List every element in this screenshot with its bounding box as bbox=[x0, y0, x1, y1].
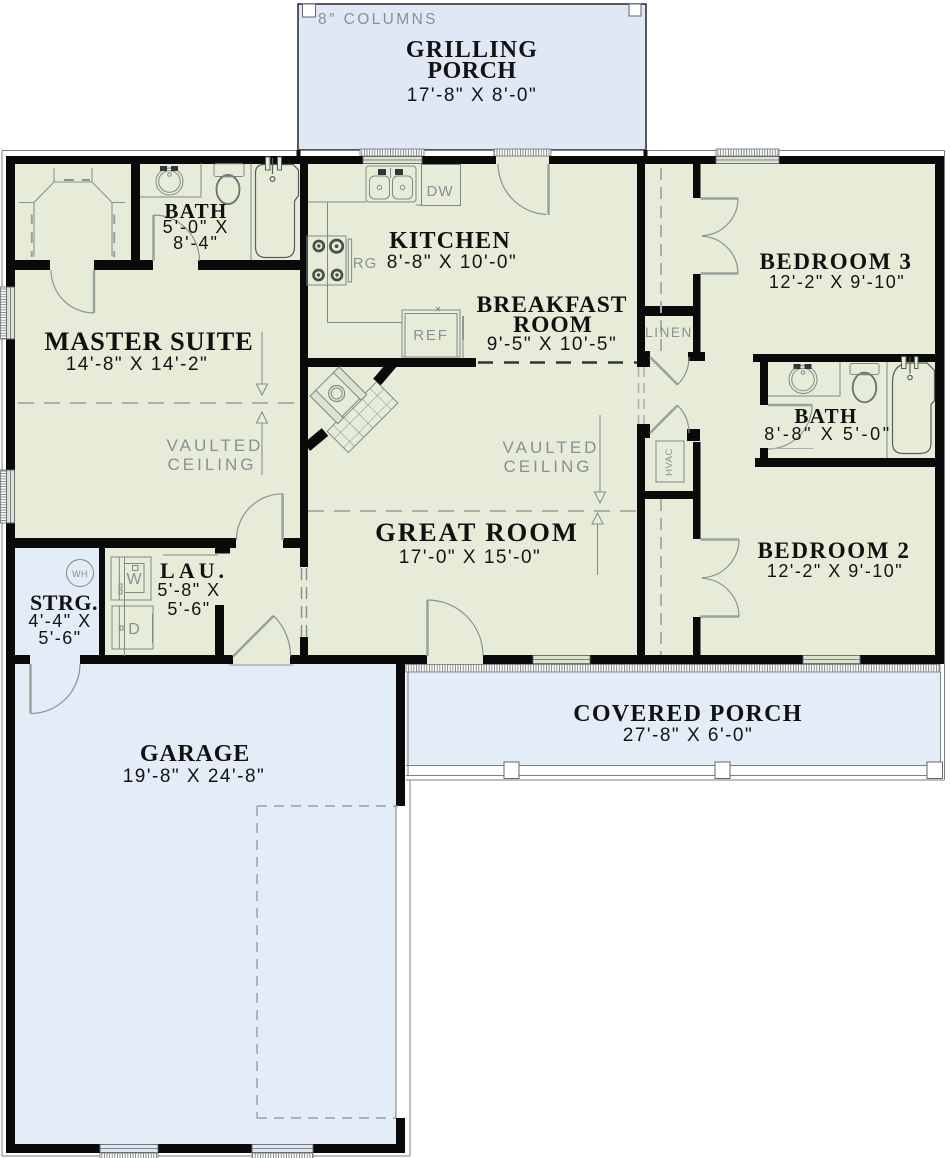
svg-text:CEILING: CEILING bbox=[503, 457, 592, 476]
svg-text:PORCH: PORCH bbox=[427, 58, 516, 84]
svg-text:12'-2" X 9'-10": 12'-2" X 9'-10" bbox=[767, 561, 903, 581]
svg-text:D: D bbox=[128, 621, 140, 638]
svg-text:5'-6": 5'-6" bbox=[38, 628, 81, 648]
svg-text:VAULTED: VAULTED bbox=[503, 438, 600, 457]
svg-text:W: W bbox=[126, 571, 142, 588]
svg-text:8'-8" X 5'-0": 8'-8" X 5'-0" bbox=[764, 424, 892, 444]
svg-text:9'-5" X 10'-5": 9'-5" X 10'-5" bbox=[487, 334, 617, 355]
svg-text:BEDROOM 2: BEDROOM 2 bbox=[757, 538, 910, 563]
svg-text:VAULTED: VAULTED bbox=[167, 436, 264, 455]
svg-text:COVERED PORCH: COVERED PORCH bbox=[573, 701, 803, 727]
svg-text:GARAGE: GARAGE bbox=[140, 741, 250, 767]
svg-text:RG: RG bbox=[353, 255, 378, 272]
svg-text:5'-6": 5'-6" bbox=[167, 599, 210, 619]
svg-text:19'-8" X 24'-8": 19'-8" X 24'-8" bbox=[123, 766, 266, 787]
svg-text:8'-4": 8'-4" bbox=[173, 233, 219, 253]
svg-text:LINEN: LINEN bbox=[645, 325, 693, 340]
svg-text:MASTER SUITE: MASTER SUITE bbox=[44, 326, 253, 356]
svg-text:12'-2" X 9'-10": 12'-2" X 9'-10" bbox=[769, 272, 905, 292]
svg-text:HVAC: HVAC bbox=[664, 448, 675, 476]
svg-text:27'-8" X 6'-0": 27'-8" X 6'-0" bbox=[623, 725, 753, 746]
svg-text:8'-8" X 10'-0": 8'-8" X 10'-0" bbox=[387, 252, 517, 273]
svg-text:CEILING: CEILING bbox=[167, 455, 256, 474]
svg-text:GREAT ROOM: GREAT ROOM bbox=[375, 517, 579, 547]
svg-text:5'-8" X: 5'-8" X bbox=[157, 580, 220, 600]
svg-text:REF: REF bbox=[413, 327, 448, 344]
svg-text:KITCHEN: KITCHEN bbox=[389, 228, 511, 254]
svg-text:DW: DW bbox=[427, 183, 454, 200]
svg-text:8″ COLUMNS: 8″ COLUMNS bbox=[318, 11, 438, 28]
svg-text:WH: WH bbox=[72, 569, 88, 579]
svg-text:14'-8" X 14'-2": 14'-8" X 14'-2" bbox=[66, 354, 209, 375]
svg-text:BEDROOM 3: BEDROOM 3 bbox=[759, 249, 912, 274]
svg-text:17'-0" X 15'-0": 17'-0" X 15'-0" bbox=[399, 547, 542, 568]
svg-text:17'-8" X 8'-0": 17'-8" X 8'-0" bbox=[407, 85, 537, 106]
